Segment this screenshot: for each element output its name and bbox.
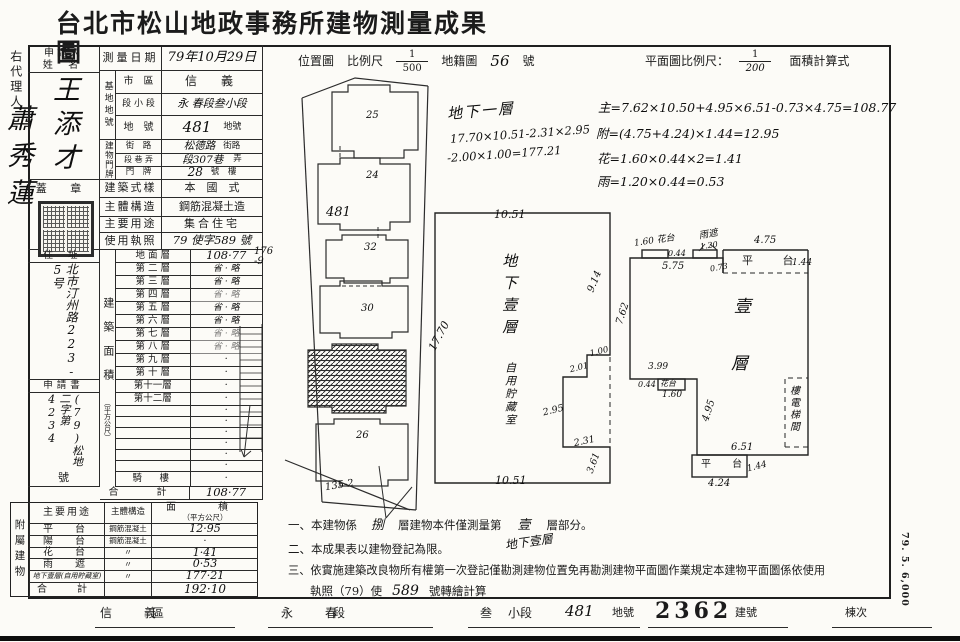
location-map-label: 位置圖 [298,55,334,69]
parcel-24-label: 24 [366,170,379,182]
floor-label [116,428,191,439]
annex-group-label: 附屬建物 [10,502,30,597]
plan-floor-label-1: 壹 [734,298,751,318]
application-number-cell: (79)松地二字第4234 [28,393,100,470]
footer-subsection-suffix: 小段 [508,607,532,621]
applicant-name-cell: 王添才 [28,73,100,180]
basement-room-use-label: 自用貯藏室 [503,362,516,427]
structure-label: 主體構造 [100,198,162,217]
location-map-drawing [228,68,440,518]
footer-land-suffix: 地號 [612,607,634,620]
floor-label [116,417,191,428]
floor-label: 第 八 層 [116,341,191,354]
plan-dim-044-left: 0.44 [638,380,656,389]
note-1-floor-count-handwritten: 捌 [371,519,384,534]
parcel-481-label: 481 [326,206,351,221]
footer-land-number-handwritten: 481 [565,603,594,620]
footer-section-suffix: 段 [333,607,345,621]
formula-main-area: 主=7.62×10.50+4.95×6.51-0.73×4.75=108.77 [598,101,896,115]
annex-use: 地下壹層(自用貯藏室) [30,571,105,583]
floor-label [116,450,191,461]
formula-rainshield-area: 雨=1.20×0.44=0.53 [597,175,724,189]
annex-total-area: 192·10 [152,583,258,597]
floor-label: 第 四 層 [116,289,191,302]
parcel-32-label: 32 [364,242,377,254]
cadastre-number-handwritten: 56 [490,53,509,70]
annex-area: 12·95 [152,524,258,536]
agent-role-label: 右代理人 [8,50,22,110]
note-1-text-a: 一、本建物係 [288,519,357,532]
site-group-text: 基地地號 [102,81,112,129]
parcel-25-label: 25 [366,110,379,122]
applicant-name-header: 申請人 姓 名 [28,47,100,73]
bottom-scan-bar [0,636,960,641]
plan-dim-651: 6.51 [731,442,753,454]
plan-dim-475: 4.75 [754,235,776,247]
site-lot-value: 481 [183,119,212,136]
note-3-license-number-handwritten: 589 [392,583,419,599]
floor-label: 地 面 層 [116,250,191,263]
footer-underline [832,627,932,628]
note-leader-lines [355,460,425,525]
scale-numerator: 1 [396,49,428,62]
scanned-survey-document: { "title": "台北市松山地政事務所建物測量成果圖", "margin"… [0,0,960,642]
site-city-label: 市 區 [116,71,162,94]
site-lot-label: 地 號 [116,116,162,140]
plan-scale-label: 平面圖比例尺： [645,55,729,69]
footer-building-number: 2362 [655,599,732,624]
cadastre-label: 地籍圖 [441,55,477,69]
note-3-text-a: 執照（79）使 [310,585,382,598]
print-code-margin-note: 79. 5. 6,000 [898,532,909,607]
footer-block-label: 棟次 [845,607,867,620]
seal-header: 蓋 章 [28,180,100,198]
application-header: 申請書 [28,380,100,393]
parcel-30-label: 30 [361,303,374,315]
annex-total-label: 合 計 [30,583,105,597]
basement-room-label: 地下壹層 [500,253,517,341]
floor-area-unit-text: （平方公尺） [103,399,111,441]
site-section-label: 段 小 段 [116,94,162,116]
premises-group-text: 建物門牌 [103,141,113,179]
plan-dim-575: 5.75 [662,261,684,273]
site-group-label: 基地地號 [100,71,116,140]
style-label: 建築式樣 [100,180,162,198]
annex-structure: 鋼筋混凝土 [105,536,152,548]
door-label: 門 牌 [116,167,162,180]
area-calc-label: 面積計算式 [789,55,849,69]
note-1-text-c: 層部分。 [547,519,593,532]
floor-label [116,439,191,450]
footer-building-suffix: 建號 [735,607,757,620]
annex-col-structure: 主體構造 [105,502,152,524]
annex-group-text: 附屬建物 [13,519,25,581]
floor-label: 第 五 層 [116,302,191,315]
applicant-label-1: 申請人 [44,48,83,60]
footer-underline [648,627,788,628]
floor-label: 第 六 層 [116,315,191,328]
note-3-line1: 三、依實施建築改良物所有權第一次登記僅勘測建物位置免再勘測建物平面圖作業規定本建… [288,565,888,578]
plan-scale-denominator: 200 [746,62,765,75]
door-value: 28 [188,166,203,180]
survey-date-label: 測量日期 [100,47,162,71]
note-2: 二、本成果表以建物登記為限。 [288,543,449,556]
applicant-label-2: 姓 名 [43,60,84,72]
footer-subsection: 叁 [480,607,492,621]
floor-area-group-text: 建築面積 [101,297,114,393]
formula-annex-area: 附=(4.75+4.24)×1.44=12.95 [596,127,779,141]
note-1-measured-floor-handwritten: 壹 [518,519,531,534]
plan-flowerbed-left-label: 花台 [660,379,676,388]
floor-label: 第 七 層 [116,328,191,341]
plan-scale-header: 平面圖比例尺： 1 200 面積計算式 [645,49,849,74]
plan-dim-399: 3.99 [648,362,668,372]
address-header: 住 址 [28,250,100,263]
floor-area-group-label: 建築面積 （平方公尺） [100,250,116,487]
annex-col-use: 主要用途 [30,502,105,524]
basement-dim-bottom: 10.51 [495,475,527,488]
floor-label: 第 九 層 [116,354,191,367]
parcel-26-label: 26 [356,430,369,442]
floor-label: 第 十 層 [116,367,191,380]
footer-underline [95,627,235,628]
plan-dim-144-top: 1.44 [792,258,812,268]
license-label: 使用執照 [100,233,162,250]
floor-label [116,461,191,472]
annex-use: 花 台 [30,548,105,559]
premises-group-label: 建物門牌 [100,140,116,180]
floor-label [116,406,191,417]
floor-label: 騎 樓 [116,472,191,487]
plan-terrace-bottom-label: 平 台 [701,459,751,471]
applicant-name-handwritten: 王添才 [48,75,79,177]
annex-structure: 〃 [105,548,152,559]
plan-scale-numerator: 1 [739,49,771,62]
annex-structure: 〃 [105,571,152,583]
floor-label: 第 二 層 [116,263,191,276]
note-1-text-b: 層建物本件僅測量第 [398,519,502,532]
annex-total-structure [105,583,152,597]
floor-label: 第 三 層 [116,276,191,289]
plan-dim-424: 4.24 [708,478,730,490]
application-number-handwritten: (79)松地二字第4234 [45,393,83,470]
plan-dim-160: 1.60 [662,390,682,400]
annex-structure: 〃 [105,559,152,571]
basement-dim-top: 10.51 [494,209,526,222]
application-number-suffix: 號 [28,470,100,487]
street-label: 街 路 [116,140,162,154]
plan-stairs-elevator-label: 樓電梯間 [787,385,799,433]
floor-total-label: 合 計 [100,487,190,500]
annex-use: 雨 遮 [30,559,105,571]
plan-dim-044-top: 0.44 [668,249,686,258]
cadastre-suffix: 號 [523,55,535,69]
floor-label: 第十二層 [116,393,191,406]
annex-structure: 鋼筋混凝土 [105,524,152,536]
footer-underline [468,627,640,628]
formula-flowerbed-area: 花=1.60×0.44×2=1.41 [597,152,743,166]
usage-label: 主要用途 [100,217,162,233]
footer-district-suffix: 區 [152,607,164,621]
lane-label: 段 巷 弄 [116,154,162,167]
scale-label: 比例尺 [347,55,383,69]
footer-underline [268,627,433,628]
address-cell: 北市汀州路223-5号 [28,263,100,380]
annex-use: 平 台 [30,524,105,536]
parcel-176-9-label: 176 -9 [254,247,273,267]
plan-floor-label-2: 層 [731,355,748,375]
plan-scale-fraction: 1 200 [739,49,771,74]
street-value: 松德路 [184,140,216,152]
floor-label: 第十一層 [116,380,191,393]
seal-stamp-icon [38,201,94,257]
note-3-text-b: 號轉繪計算 [429,585,487,598]
address-handwritten: 北市汀州路223-5号 [50,263,78,379]
note-3-line2: 執照（79）使 589 號轉繪計算 [310,583,486,599]
